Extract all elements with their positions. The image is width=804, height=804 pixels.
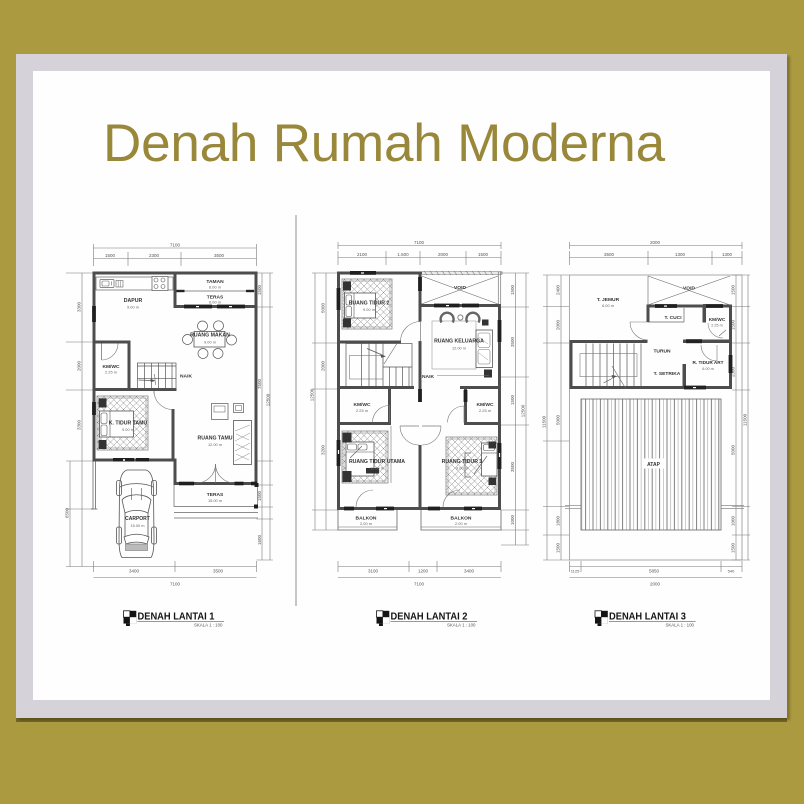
svg-text:6.00 m: 6.00 m <box>209 300 221 305</box>
svg-text:T. CUCI: T. CUCI <box>664 315 682 321</box>
svg-text:RUANG KELUARGA: RUANG KELUARGA <box>434 339 484 345</box>
svg-text:DENAH LANTAI 1: DENAH LANTAI 1 <box>138 611 215 623</box>
svg-text:RUANG TIDUR 2: RUANG TIDUR 2 <box>349 301 390 307</box>
svg-text:1500: 1500 <box>510 394 515 405</box>
svg-text:2300: 2300 <box>149 253 160 258</box>
svg-text:3500: 3500 <box>213 569 224 574</box>
svg-text:3500: 3500 <box>604 252 615 257</box>
svg-text:2000: 2000 <box>650 240 661 245</box>
svg-text:1500: 1500 <box>105 253 116 258</box>
svg-text:KM/WC: KM/WC <box>709 317 726 322</box>
svg-text:12.00 m: 12.00 m <box>370 466 384 471</box>
svg-text:7100: 7100 <box>414 240 425 245</box>
svg-text:5000: 5000 <box>556 414 561 425</box>
svg-text:11500: 11500 <box>542 415 547 428</box>
svg-text:5850: 5850 <box>649 569 660 574</box>
svg-text:9.00 m: 9.00 m <box>127 305 139 310</box>
svg-text:DENAH LANTAI 3: DENAH LANTAI 3 <box>609 611 686 623</box>
svg-text:12500: 12500 <box>310 388 315 401</box>
svg-text:1300: 1300 <box>675 252 686 257</box>
svg-text:SKALA 1 : 100: SKALA 1 : 100 <box>447 623 476 628</box>
svg-text:1200: 1200 <box>418 569 429 574</box>
svg-text:2000: 2000 <box>438 252 449 257</box>
svg-text:2000: 2000 <box>556 319 561 330</box>
svg-text:9.00 m: 9.00 m <box>204 340 216 345</box>
svg-text:R. TIDUR ART: R. TIDUR ART <box>692 360 723 365</box>
svg-text:1300: 1300 <box>722 252 733 257</box>
svg-text:12500: 12500 <box>266 393 271 406</box>
svg-text:540: 540 <box>728 569 735 574</box>
svg-text:DENAH LANTAI 2: DENAH LANTAI 2 <box>391 611 468 623</box>
svg-text:NAIK: NAIK <box>422 374 434 380</box>
svg-text:3400: 3400 <box>464 569 475 574</box>
svg-text:2.25 m: 2.25 m <box>356 408 368 413</box>
svg-text:2000: 2000 <box>77 360 82 371</box>
svg-text:9.00 m: 9.00 m <box>122 427 134 432</box>
svg-text:3300: 3300 <box>77 419 82 430</box>
svg-text:9.00 m: 9.00 m <box>456 466 468 471</box>
svg-text:CARPORT: CARPORT <box>125 516 150 522</box>
svg-text:1500: 1500 <box>731 542 736 553</box>
svg-text:2.00 m: 2.00 m <box>360 521 372 526</box>
svg-text:3500: 3500 <box>510 336 515 347</box>
svg-text:1600: 1600 <box>257 534 262 545</box>
svg-text:1.500: 1.500 <box>397 252 409 257</box>
svg-text:1500: 1500 <box>731 284 736 295</box>
svg-text:15.00 m: 15.00 m <box>130 523 144 528</box>
svg-text:15.00 m: 15.00 m <box>208 498 222 503</box>
svg-text:7100: 7100 <box>414 582 425 587</box>
svg-text:DAPUR: DAPUR <box>124 298 143 304</box>
svg-text:1500: 1500 <box>257 284 262 295</box>
svg-text:7100: 7100 <box>170 582 181 587</box>
svg-text:1125: 1125 <box>571 569 580 574</box>
svg-text:1500: 1500 <box>510 284 515 295</box>
svg-text:1500: 1500 <box>478 252 489 257</box>
svg-text:6.00 m: 6.00 m <box>209 285 221 290</box>
svg-text:TURUN: TURUN <box>653 349 671 355</box>
svg-text:RUANG TIDUR 3: RUANG TIDUR 3 <box>442 459 483 465</box>
svg-text:2.00 m: 2.00 m <box>455 521 467 526</box>
svg-text:12.00 m: 12.00 m <box>452 346 466 351</box>
svg-text:VOID: VOID <box>454 285 466 291</box>
svg-text:7100: 7100 <box>170 243 181 248</box>
svg-text:1000: 1000 <box>731 515 736 526</box>
svg-text:SKALA 1 : 100: SKALA 1 : 100 <box>194 623 223 628</box>
svg-text:VOID: VOID <box>683 286 695 292</box>
svg-text:5000: 5000 <box>731 444 736 455</box>
svg-text:2.25 m: 2.25 m <box>105 370 117 375</box>
svg-text:2.25 m: 2.25 m <box>479 408 491 413</box>
svg-text:3400: 3400 <box>129 569 140 574</box>
svg-text:5000: 5000 <box>321 302 326 313</box>
svg-text:RUANG TAMU: RUANG TAMU <box>197 436 232 442</box>
svg-text:2000: 2000 <box>321 360 326 371</box>
svg-text:7500: 7500 <box>257 378 262 389</box>
svg-text:T. SETRIKA: T. SETRIKA <box>654 371 681 377</box>
svg-text:1500: 1500 <box>556 542 561 553</box>
svg-text:3300: 3300 <box>77 301 82 312</box>
svg-text:3100: 3100 <box>368 569 379 574</box>
svg-text:1000: 1000 <box>510 514 515 525</box>
svg-text:3500: 3500 <box>510 461 515 472</box>
svg-text:12500: 12500 <box>521 404 526 417</box>
svg-text:11500: 11500 <box>743 413 748 426</box>
svg-text:SKALA 1 : 100: SKALA 1 : 100 <box>665 623 694 628</box>
svg-text:12.00 m: 12.00 m <box>208 442 222 447</box>
svg-text:3500: 3500 <box>214 253 225 258</box>
svg-text:2000: 2000 <box>650 582 661 587</box>
svg-text:K. TIDUR TAMU: K. TIDUR TAMU <box>109 421 148 427</box>
svg-text:6.00 m: 6.00 m <box>602 303 614 308</box>
svg-text:2.25 m: 2.25 m <box>711 324 723 328</box>
svg-text:NAIK: NAIK <box>180 374 192 380</box>
svg-text:6.00 m: 6.00 m <box>702 367 714 371</box>
svg-text:6500: 6500 <box>65 507 70 518</box>
svg-text:9.00 m: 9.00 m <box>363 307 375 312</box>
svg-text:2100: 2100 <box>357 252 368 257</box>
svg-text:3200: 3200 <box>321 444 326 455</box>
svg-text:2400: 2400 <box>556 284 561 295</box>
svg-text:1800: 1800 <box>556 515 561 526</box>
svg-text:ATAP: ATAP <box>647 462 661 468</box>
svg-text:RUANG MAKAN: RUANG MAKAN <box>190 333 230 339</box>
svg-text:RUANG TIDUR UTAMA: RUANG TIDUR UTAMA <box>349 459 405 465</box>
